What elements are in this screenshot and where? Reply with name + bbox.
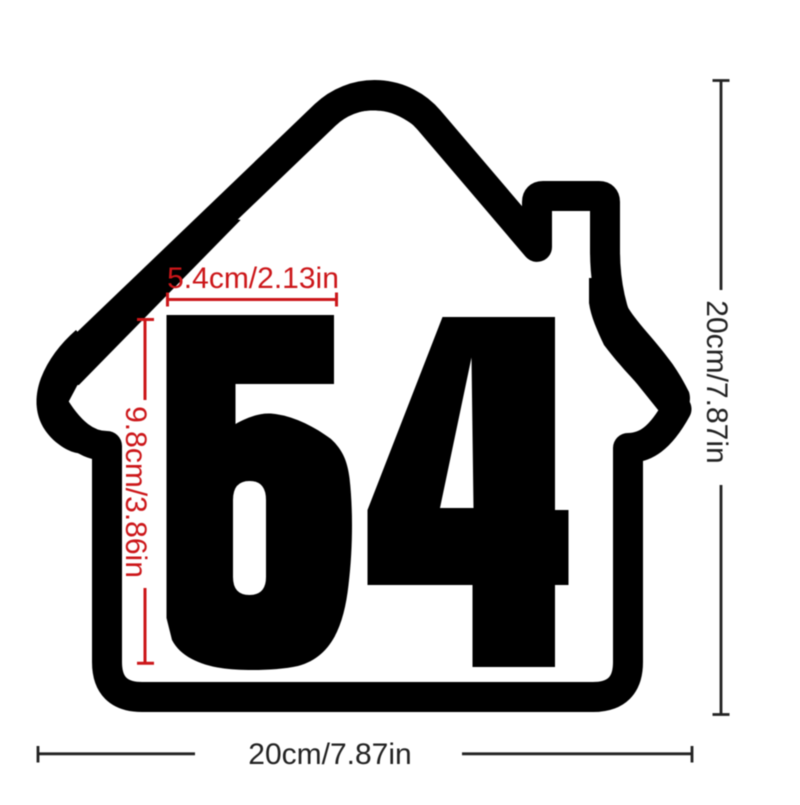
svg-text:20cm/7.87in: 20cm/7.87in	[700, 300, 733, 463]
svg-text:20cm/7.87in: 20cm/7.87in	[248, 738, 411, 771]
svg-text:9.8cm/3.86in: 9.8cm/3.86in	[119, 406, 152, 578]
svg-text:5.4cm/2.13in: 5.4cm/2.13in	[167, 262, 339, 295]
